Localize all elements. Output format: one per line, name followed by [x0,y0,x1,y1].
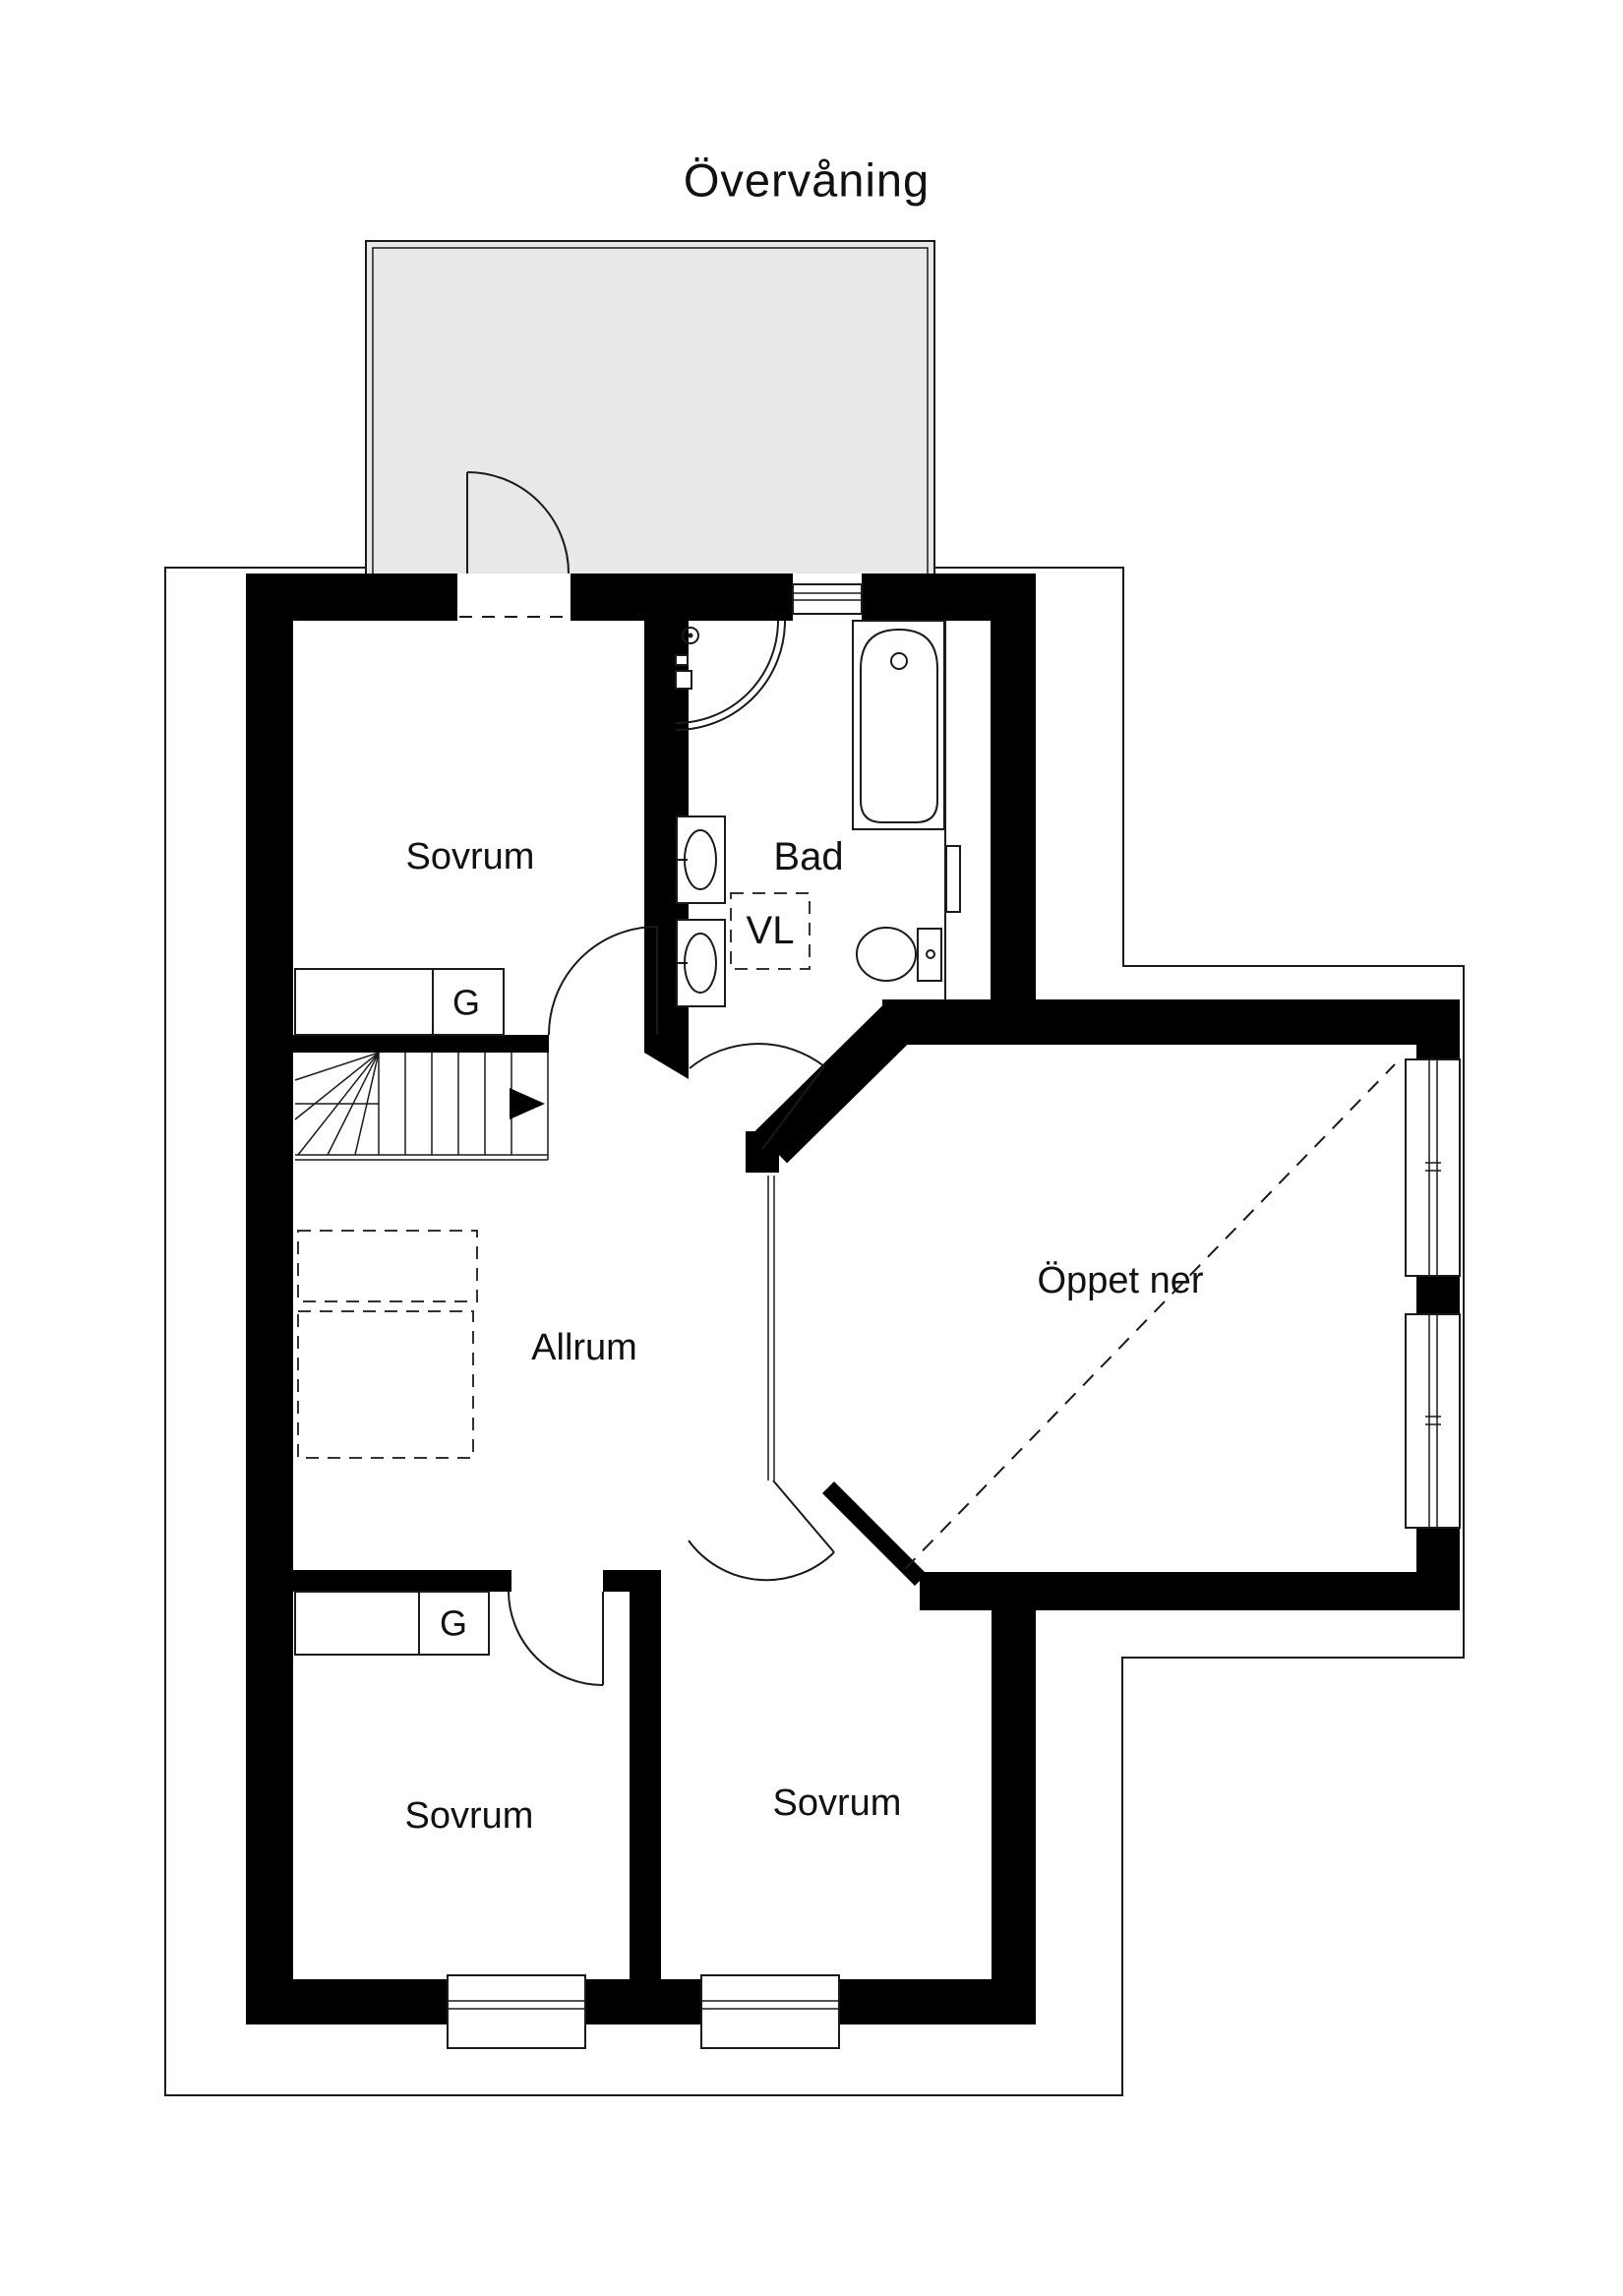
room-label-bedroom-bottom-middle: Sovrum [773,1782,902,1824]
room-label-bathroom: Bad [773,835,843,878]
window-icon [793,584,862,614]
balcony-floor [366,241,934,574]
wardrobe-label: G [452,983,480,1023]
window-icon [701,1975,839,2048]
wall-bedrooms-divider [630,1570,661,1979]
room-label-open-below: Öppet ner [1038,1260,1204,1301]
laundry-area: VL [731,893,810,969]
stairs-icon [295,1053,548,1160]
wall-west [246,574,293,2024]
shower-icon [676,621,785,730]
sink-icon [677,816,725,903]
room-labels: Sovrum Bad Allrum Öppet ner Sovrum Sovru… [405,835,1204,1837]
door-swing-icon [690,1044,824,1068]
wall-bedroom-mid-east [992,1601,1036,2024]
laundry-label: VL [747,909,795,952]
door-bedroom-bottom-left [509,1592,603,1685]
storage-dashed-outline [298,1311,473,1458]
toilet-icon [857,928,941,981]
wall-south [246,1979,1036,2024]
wardrobe-bottom: G [295,1592,489,1655]
wall-diagonal-northwest [771,1015,905,1147]
wall-door-jamb-stub [746,1131,779,1173]
stairs-direction-arrow [510,1088,545,1119]
door-bedroom-top [549,927,657,1035]
window-icon [1406,1314,1460,1528]
wardrobe-top: G [295,969,504,1035]
wall-livingroom-south [293,1570,511,1592]
floorplan-svg: Övervåning [0,0,1623,2296]
balcony-door-opening [457,574,571,621]
storage-dashed-outline [298,1231,477,1301]
wardrobe-label: G [440,1603,467,1644]
sink-icon [677,920,725,1006]
open-edge-lines [768,1176,774,1480]
roof-contour [165,568,1464,2095]
door-swing-icon [689,1541,834,1580]
wall-bathroom-east [991,574,1036,1045]
door-swing-icon [549,927,657,1035]
windows [448,584,1460,2048]
balcony [366,241,934,574]
door-bedroom-bottom-middle [689,1480,834,1580]
bathtub-icon [853,621,944,829]
window-icon [448,1975,585,2048]
page-title: Övervåning [684,154,930,207]
duct-shaft [946,846,960,912]
room-label-bedroom-top: Sovrum [406,836,535,877]
window-icon [1406,1059,1460,1276]
door-swing-icon [509,1592,603,1685]
floorplan-page: Övervåning [0,0,1623,2296]
wall-bedroom-top-south [293,1035,549,1053]
wall-north [246,574,1036,621]
open-below-icon [905,1064,1395,1569]
room-label-bedroom-bottom-left: Sovrum [405,1795,534,1837]
room-label-living: Allrum [531,1327,637,1368]
wall-openbelow-north [882,999,1460,1045]
